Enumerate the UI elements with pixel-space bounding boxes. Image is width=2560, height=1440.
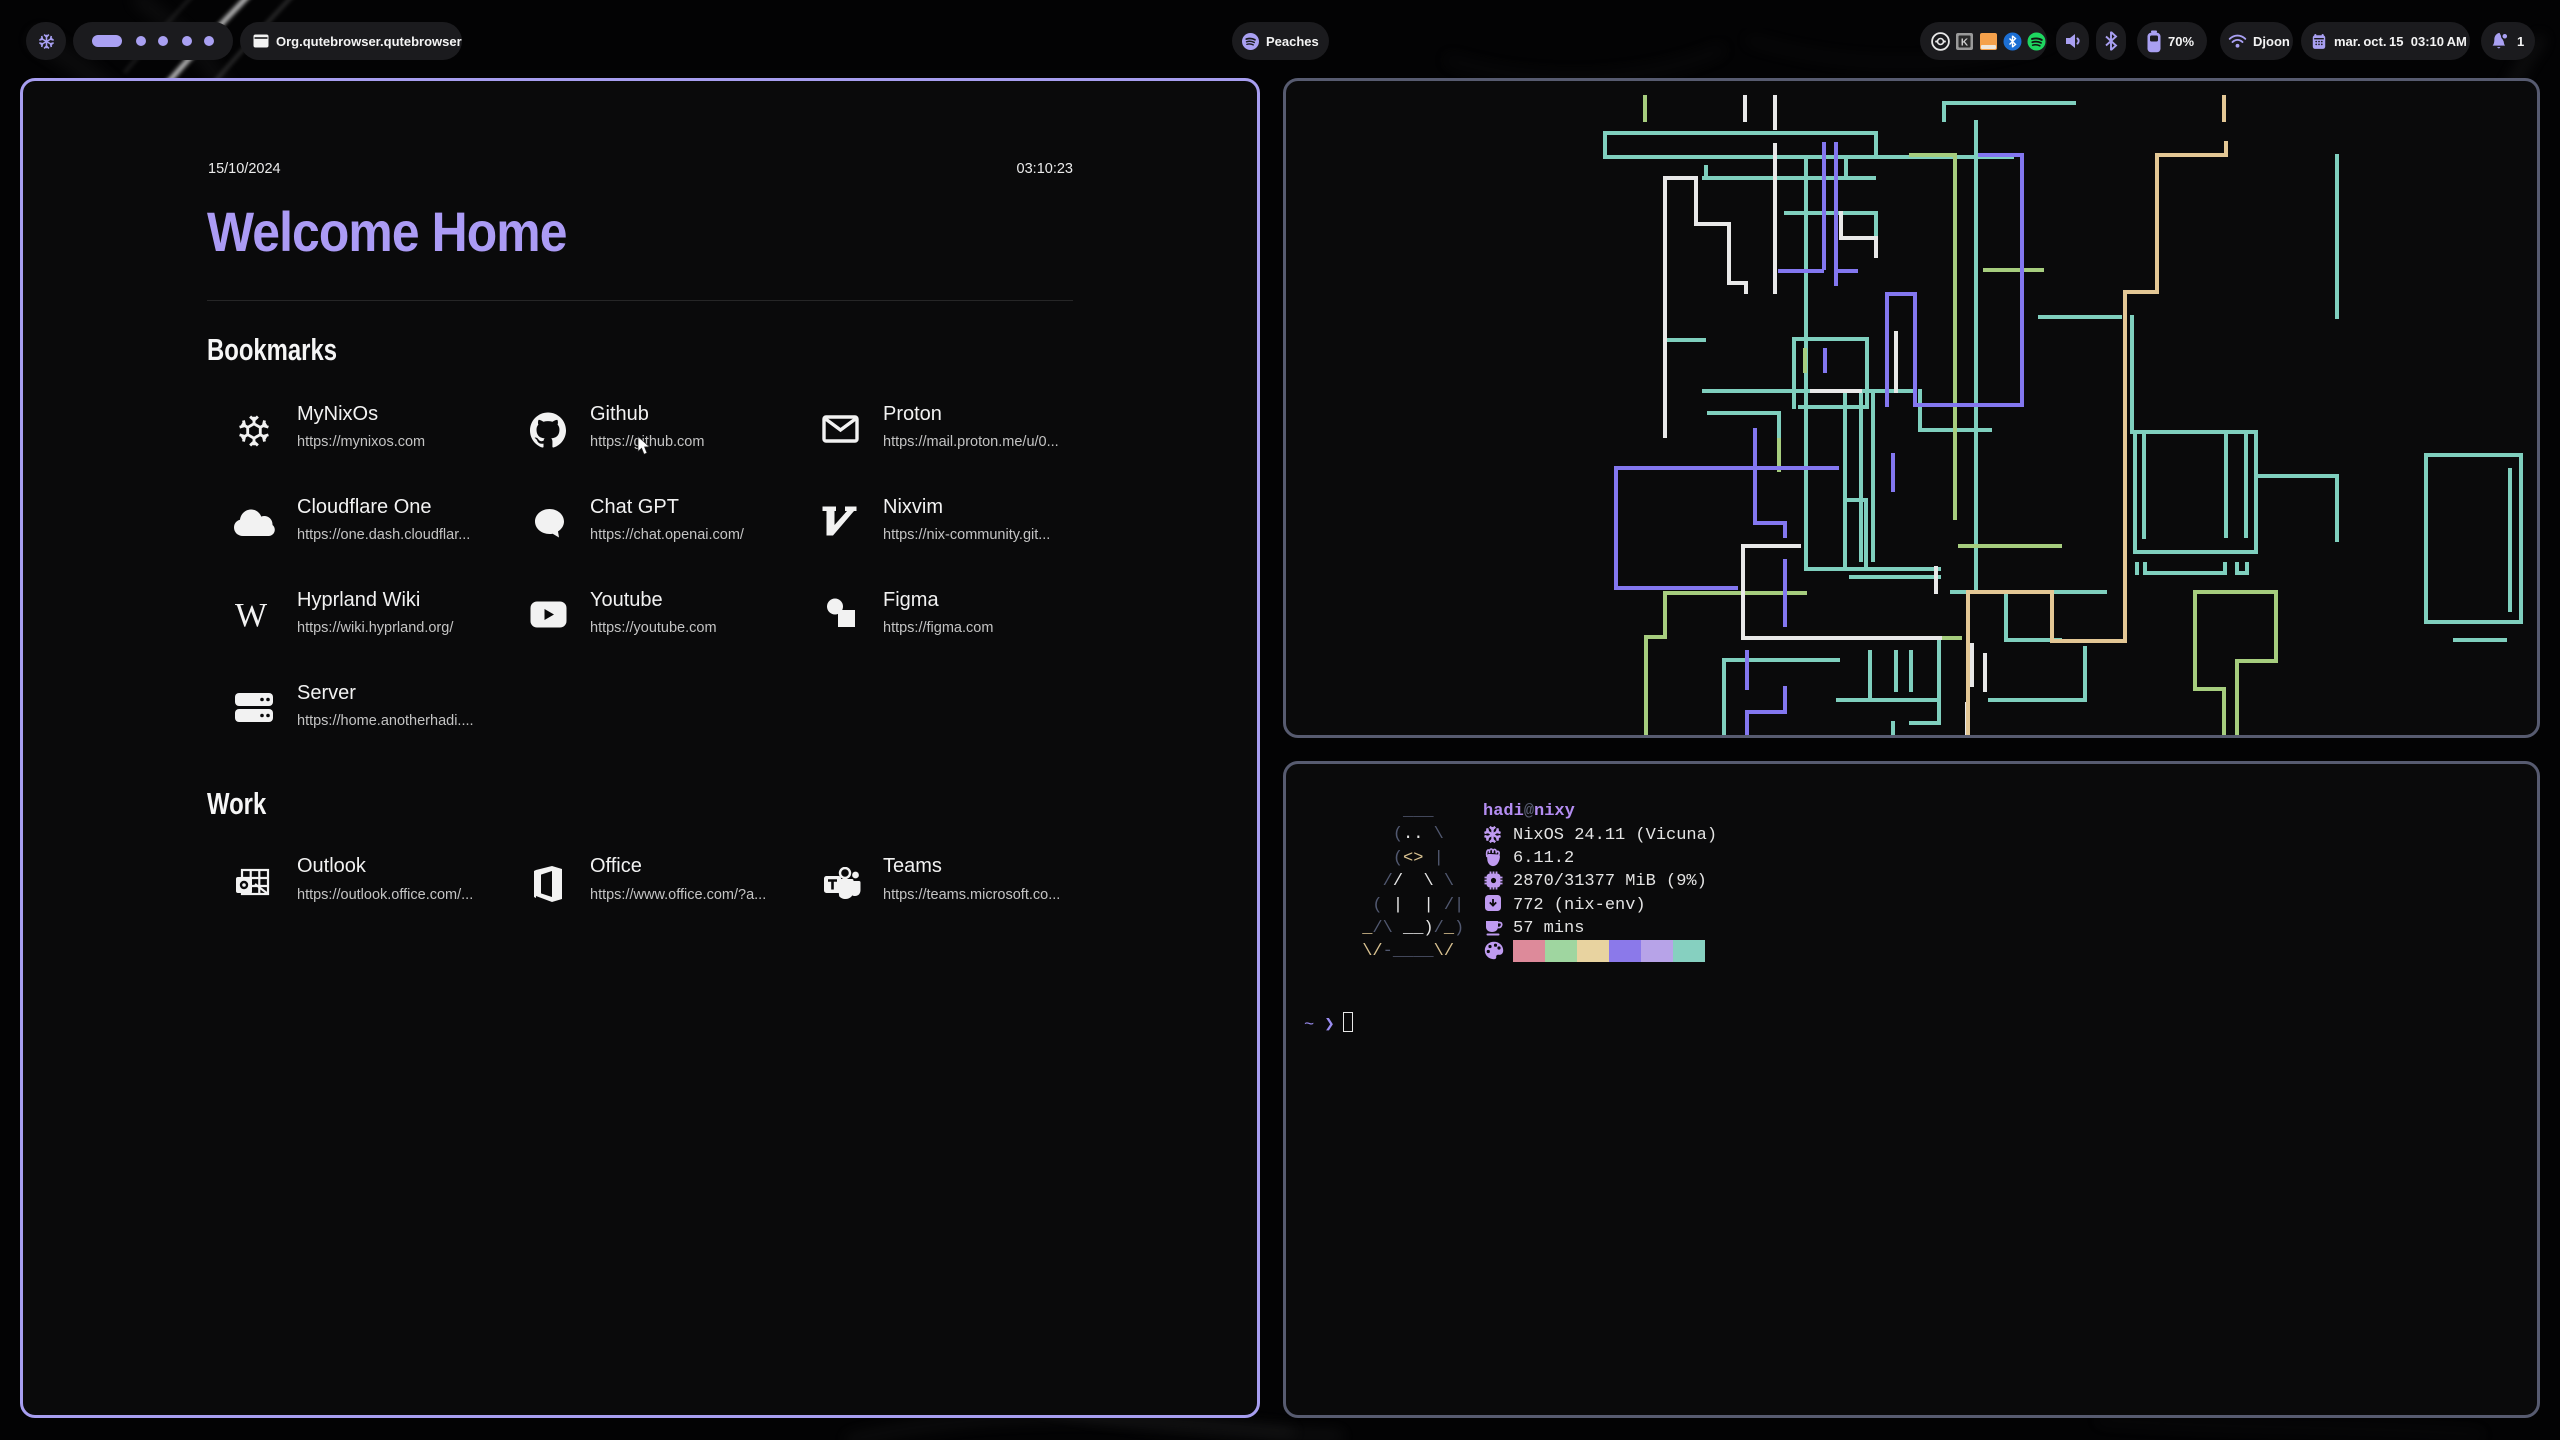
svg-text:K: K [1961,37,1969,48]
